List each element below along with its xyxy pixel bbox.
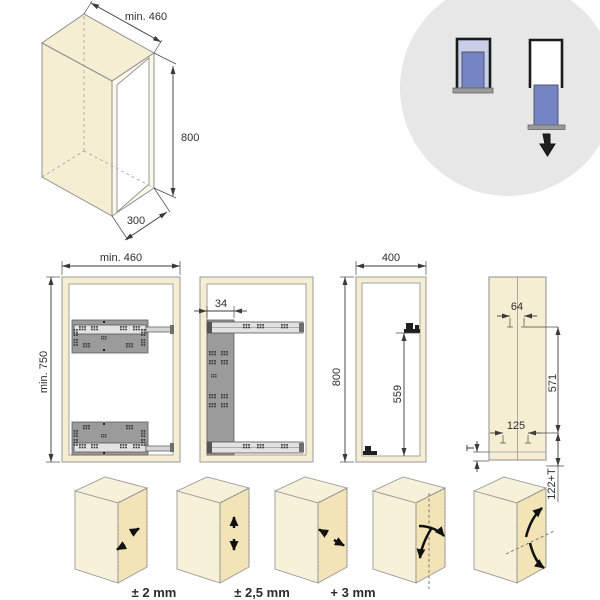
depth-adjustment-label: + 3 mm: [330, 585, 375, 600]
cabinet-opening-diagram: 400 800 559: [331, 252, 426, 462]
bottom-offset-label: 122+T: [546, 468, 558, 500]
badge-circle: [400, 0, 600, 196]
adjustment-rotate-horizontal-box: [474, 477, 554, 583]
front-view-diagram: min. 460 min. 750: [38, 252, 180, 462]
bottom-hole-spacing-label: 125: [507, 420, 525, 432]
dimension-front-height: min. 750: [38, 277, 60, 462]
side-lower-rail: [207, 442, 304, 453]
panel-inserted-icon: [453, 39, 493, 93]
side-upper-rail: [207, 322, 304, 333]
opening-width-label: 400: [382, 252, 400, 264]
side-view-diagram: 34: [194, 277, 313, 462]
dimension-thickness: T: [465, 441, 489, 472]
iso-depth-label: min. 460: [125, 11, 167, 23]
vertical-adjustment-label: ± 2,5 mm: [234, 585, 290, 600]
adjustment-lateral-box: [75, 477, 147, 583]
adjustment-vertical-box: [177, 477, 249, 583]
installation-instructions-page: min. 460 800 300: [0, 0, 600, 600]
dimension-front-width: min. 460: [62, 252, 180, 275]
iso-width-label: 300: [127, 215, 145, 227]
front-height-label: min. 750: [38, 351, 50, 393]
opening-height-label: 800: [331, 368, 343, 386]
iso-height-label: 800: [181, 132, 199, 144]
length-label: 571: [547, 374, 559, 392]
iso-dimension-height: 800: [154, 53, 199, 198]
dimension-opening-width: 400: [356, 252, 426, 275]
front-width-label: min. 460: [100, 252, 142, 264]
hole-spacing-label: 64: [511, 301, 523, 313]
dimension-bottom-offset: 122+T: [546, 433, 564, 502]
dimension-opening-height: 800: [331, 277, 354, 462]
iso-cabinet-drawing: min. 460 800 300: [42, 1, 199, 240]
bracket-height-label: 559: [392, 385, 404, 403]
technical-drawing-canvas: min. 460 800 300: [0, 0, 600, 600]
adjustment-depth-box: [275, 477, 347, 583]
inset-circle-badge: [400, 0, 600, 196]
back-panel-diagram: 64 571 125 T 122+T: [465, 277, 564, 502]
adjustment-rotate-vertical-box: [373, 477, 445, 589]
lateral-adjustment-label: ± 2 mm: [132, 585, 177, 600]
thickness-label: T: [465, 444, 477, 451]
plate-offset-label: 34: [215, 298, 227, 310]
adjustment-row: ± 2 mm ± 2,5 mm + 3 mm: [75, 477, 554, 600]
